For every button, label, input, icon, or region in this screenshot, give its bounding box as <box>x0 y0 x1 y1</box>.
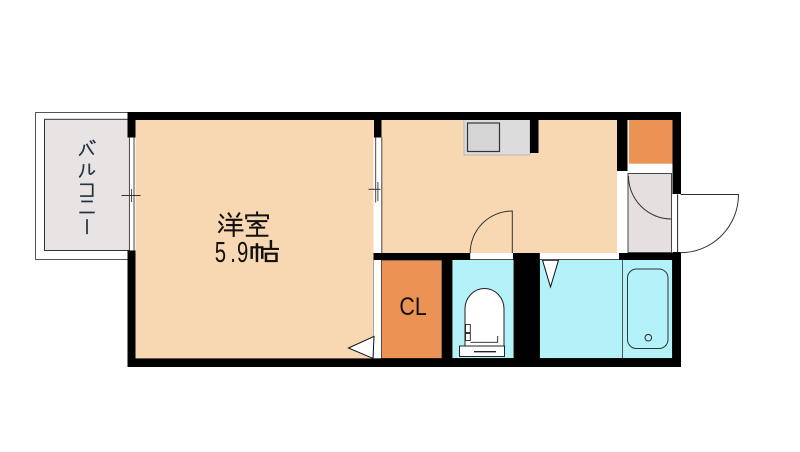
svg-text:CL: CL <box>399 292 426 320</box>
svg-text:.: . <box>230 237 236 269</box>
svg-text:9: 9 <box>237 237 248 269</box>
svg-text:5: 5 <box>215 237 226 269</box>
